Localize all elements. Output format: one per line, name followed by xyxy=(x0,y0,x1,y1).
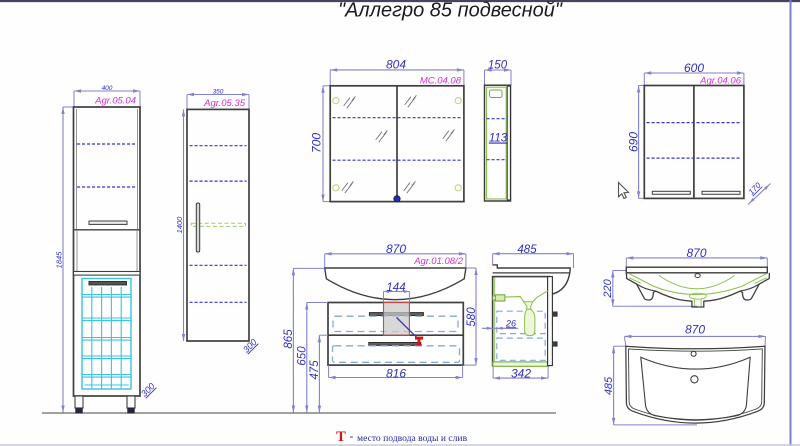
svg-text:26: 26 xyxy=(505,318,516,328)
svg-text:700: 700 xyxy=(310,133,324,153)
svg-text:870: 870 xyxy=(685,323,705,337)
svg-text:MC.04.08: MC.04.08 xyxy=(420,76,462,87)
svg-text:650: 650 xyxy=(296,346,308,366)
svg-text:1400: 1400 xyxy=(175,216,184,234)
svg-text:350: 350 xyxy=(213,89,224,96)
svg-text:870: 870 xyxy=(386,242,406,256)
svg-text:1845: 1845 xyxy=(54,251,63,269)
svg-text:816: 816 xyxy=(386,366,406,380)
svg-text:804: 804 xyxy=(386,57,406,71)
svg-text:Agr.05.35: Agr.05.35 xyxy=(203,98,246,109)
svg-text:Agr.05.04: Agr.05.04 xyxy=(94,96,136,107)
svg-text:"Аллегро 85 подвесной": "Аллегро 85 подвесной" xyxy=(338,0,563,22)
svg-text:150: 150 xyxy=(488,60,508,72)
svg-text:485: 485 xyxy=(517,244,537,256)
svg-text:870: 870 xyxy=(686,246,706,260)
svg-text:475: 475 xyxy=(309,360,321,380)
svg-text:342: 342 xyxy=(511,366,531,380)
svg-text:место подвода воды и слив: место подвода воды и слив xyxy=(357,433,468,444)
svg-text:144: 144 xyxy=(386,282,405,294)
svg-text:580: 580 xyxy=(466,307,478,327)
svg-text:220: 220 xyxy=(602,278,614,298)
svg-text:113: 113 xyxy=(489,133,508,145)
svg-text:Agr.01.08/2: Agr.01.08/2 xyxy=(413,256,463,267)
svg-text:400: 400 xyxy=(102,85,113,92)
svg-text:485: 485 xyxy=(603,376,615,395)
svg-text:690: 690 xyxy=(626,132,640,152)
svg-text:-: - xyxy=(350,431,354,443)
svg-text:Т: Т xyxy=(336,429,346,445)
svg-text:600: 600 xyxy=(684,61,704,75)
svg-text:865: 865 xyxy=(283,329,295,349)
